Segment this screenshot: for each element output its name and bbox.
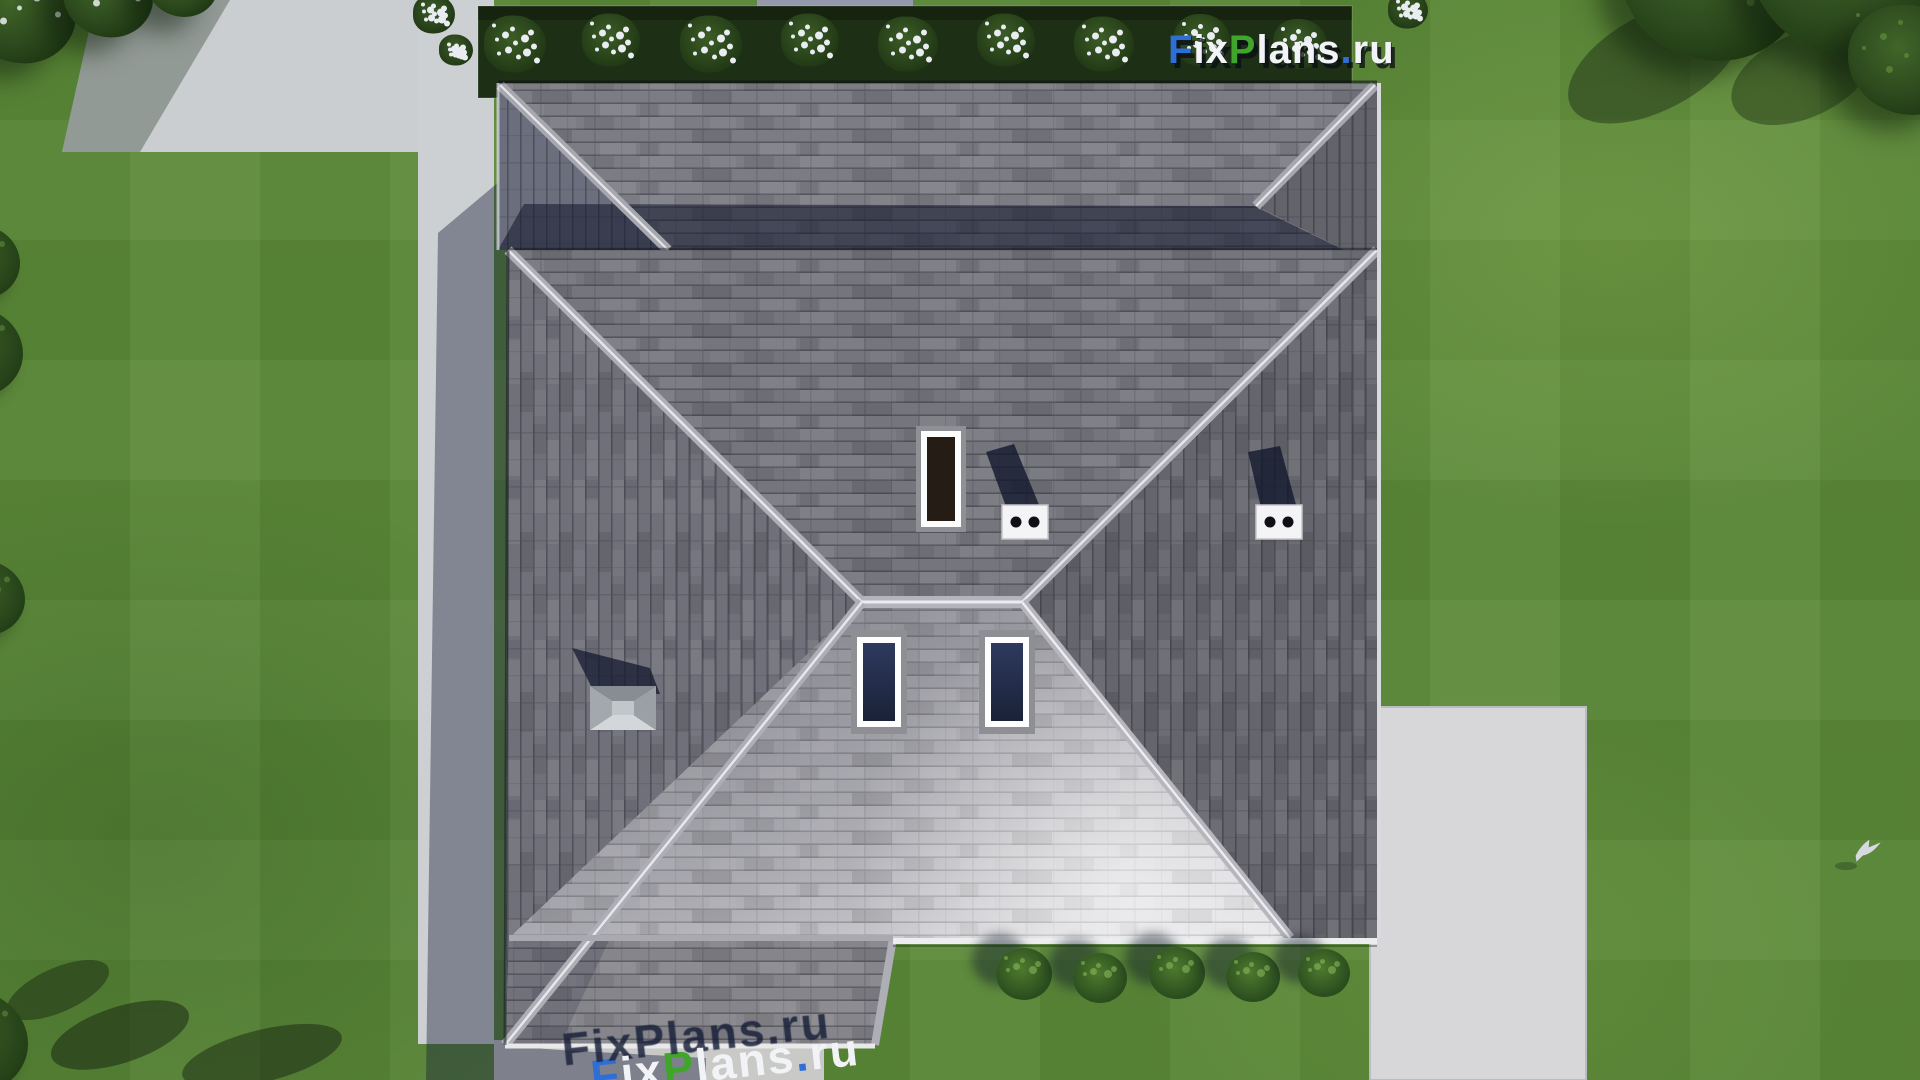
skylight-navy <box>851 630 907 734</box>
roof-vent-two-holes <box>1256 505 1302 539</box>
aerial-scene: FixPlans.ru FixPlans.ru <box>0 0 1920 1080</box>
chimney-skylight-dark <box>916 426 966 532</box>
tree-shadow <box>1716 7 1887 145</box>
logo-letter: ix <box>1193 28 1228 72</box>
logo-letter: . <box>1341 28 1353 72</box>
logo-letter: lans <box>693 1030 798 1080</box>
bird-icon <box>1851 837 1884 862</box>
roof-back-wing <box>498 82 1377 250</box>
pyramid-roof-vent <box>590 686 656 730</box>
patio-right <box>1370 707 1586 1080</box>
roof-vent-two-holes <box>1002 505 1048 539</box>
flower-bed-top-shade <box>478 6 1352 20</box>
bird-shadow <box>1835 862 1857 870</box>
logo-letter: F <box>1168 28 1193 72</box>
tree-shadow <box>1549 0 1762 149</box>
logo-letter: ru <box>1353 28 1395 72</box>
logo-letter: lans <box>1256 28 1340 72</box>
logo-letter: ix <box>618 1043 666 1080</box>
logo-letter: P <box>1229 28 1257 72</box>
logo-letter: ru <box>807 1023 862 1080</box>
tree-shadow <box>176 1011 348 1080</box>
fixplans-logo: FixPlans.ru <box>1168 28 1395 73</box>
skylight-navy <box>979 630 1035 734</box>
scene-graphics <box>0 0 1920 1080</box>
